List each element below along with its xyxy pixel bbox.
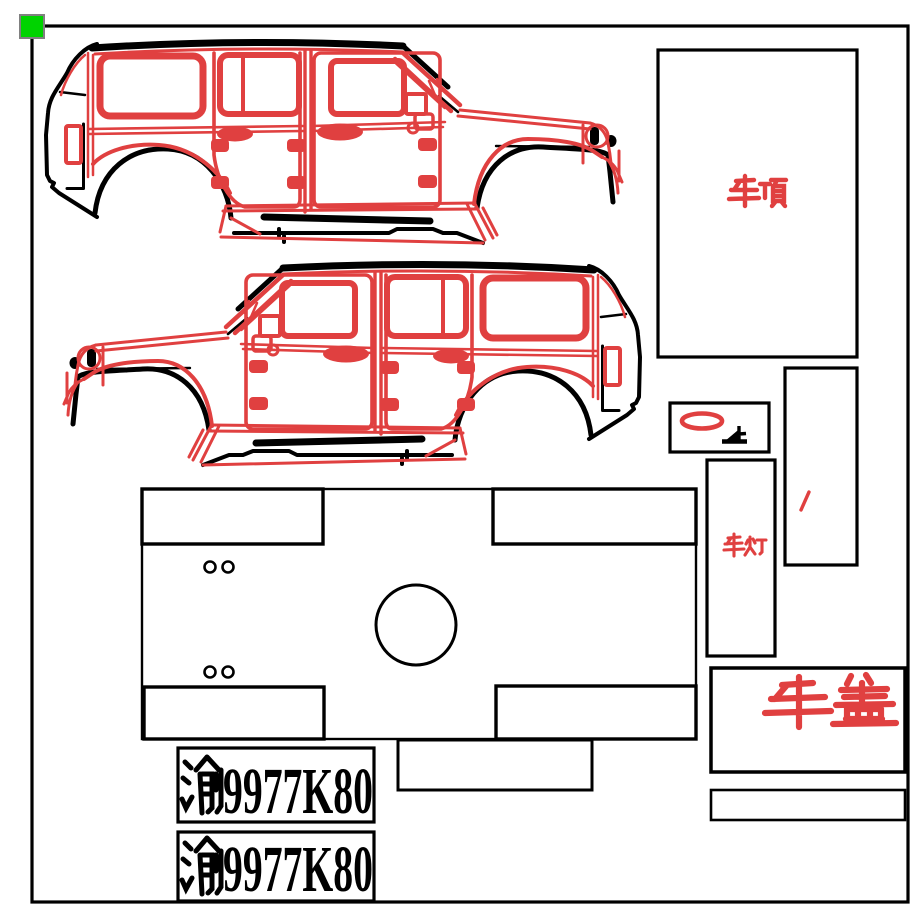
svg-text:9977K80: 9977K80 (223, 833, 373, 906)
svg-text:9977K80: 9977K80 (223, 755, 373, 828)
